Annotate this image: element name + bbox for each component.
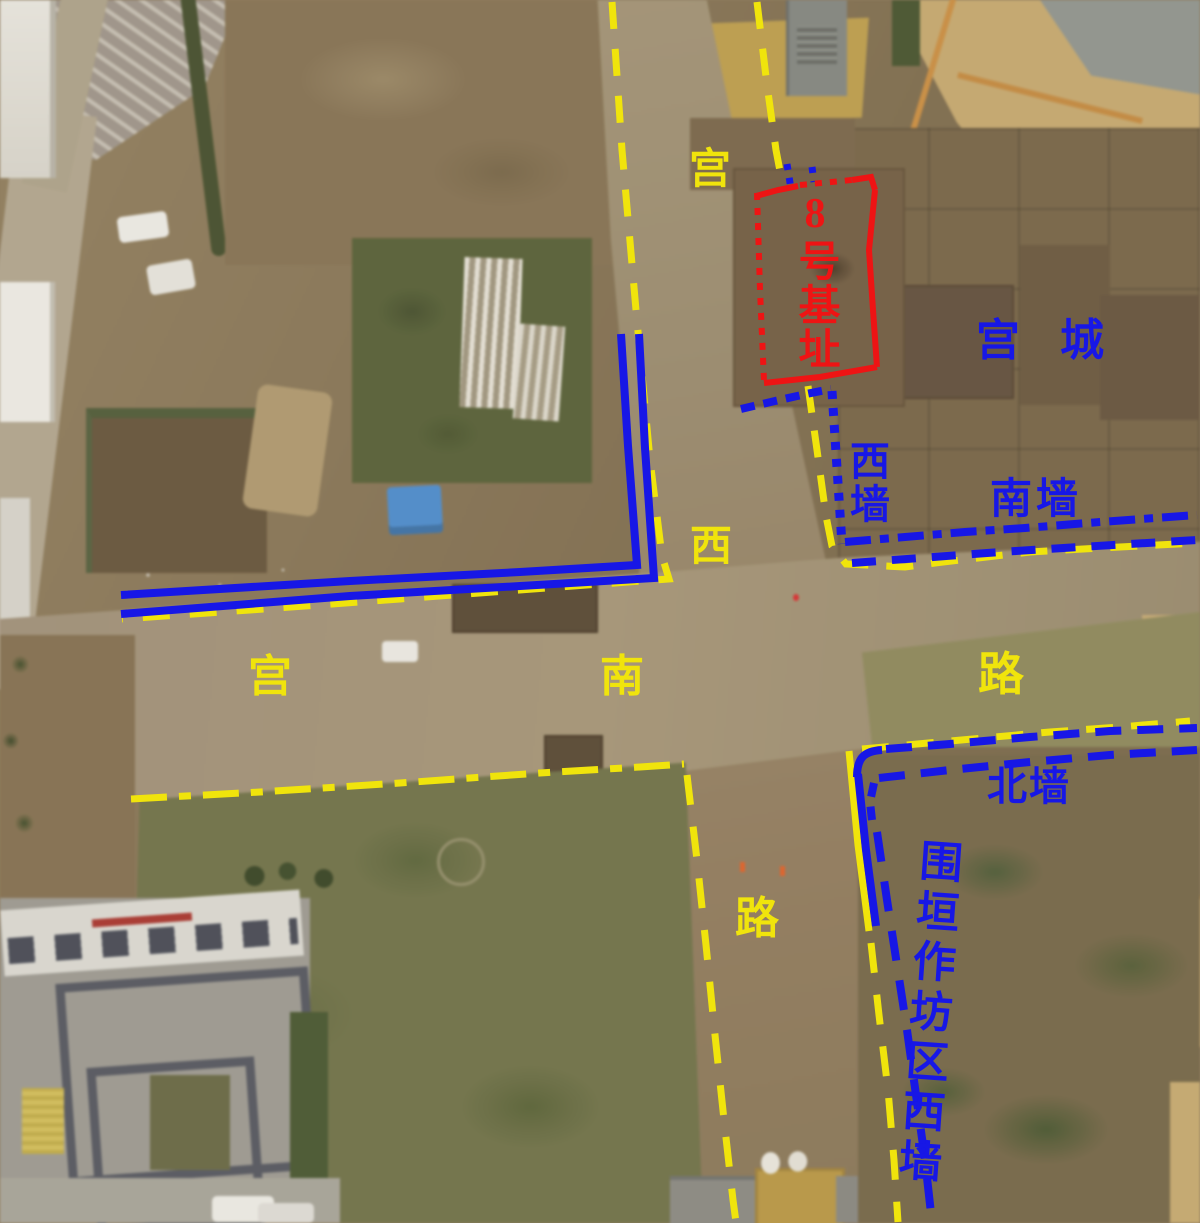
annotation-lines <box>0 0 1200 1223</box>
road-line-west-edge-and-north-edge <box>122 2 669 619</box>
label-palace-city: 宫城 <box>976 319 1144 363</box>
road-line-south-edge-left <box>131 764 684 799</box>
wall-line-northwall-corner <box>857 750 882 777</box>
label-foundation-no8: 8号基址 <box>794 191 836 371</box>
road-line-east-edge-top <box>757 2 783 187</box>
label-road-west-char-gong: 宫 <box>689 149 731 191</box>
label-west-wall: 西墙 <box>846 440 886 526</box>
site8-outline-top-corner <box>852 177 875 190</box>
annotated-aerial-map: 宫 西 路 宫 南 路 宫城 8号基址 西墙 南墙 北墙 围垣作坊区西墙 <box>0 0 1200 1223</box>
label-south-wall: 南墙 <box>990 479 1082 521</box>
road-line-west-edge-bottom <box>687 775 736 1222</box>
site8-outline-top-dotted <box>800 180 852 185</box>
label-road-west-char-lu: 路 <box>735 897 779 941</box>
wall-line-dot-top-2 <box>812 167 814 182</box>
wall-line-northwall-hook <box>870 783 874 820</box>
wall-line-L-inner <box>121 334 637 595</box>
label-road-south-char-gong: 宫 <box>248 655 292 699</box>
wall-line-westwall-dotted <box>832 391 842 544</box>
site8-outline-left-dotted <box>757 193 764 381</box>
label-road-south-char-nan: 南 <box>600 655 644 699</box>
label-north-wall: 北墙 <box>987 767 1071 807</box>
site8-outline-right-solid <box>869 190 877 367</box>
wall-line-site8-bottom <box>741 389 831 409</box>
label-road-south-char-lu: 路 <box>978 652 1024 698</box>
wall-line-southwall-lower <box>852 540 1197 563</box>
label-road-west-char-xi: 西 <box>690 526 732 568</box>
